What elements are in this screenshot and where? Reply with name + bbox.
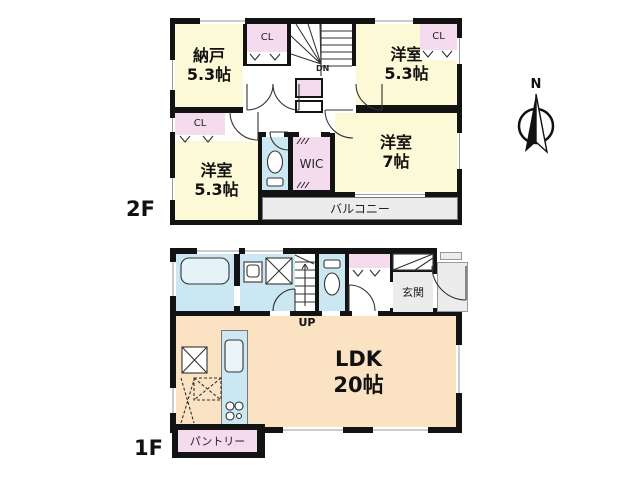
room-ldk-label: LDK 20帖 (296, 346, 421, 399)
compass-north-label: N (510, 78, 562, 91)
compass-icon (510, 92, 562, 158)
stairs-up-label: UP (294, 317, 320, 328)
floor2-linework-svg (170, 18, 462, 225)
room-ldk-area: 20帖 (296, 372, 421, 398)
floor1-label: 1F (134, 438, 170, 459)
stairs-dn-label: DN (316, 65, 340, 73)
floorplan-canvas: 納戸 5.3帖 CL 洋室 5.3帖 CL 洋室 7帖 CL 洋室 5.3帖 W… (0, 0, 640, 480)
room-ldk-name: LDK (296, 346, 421, 372)
floor2-label: 2F (126, 199, 166, 220)
